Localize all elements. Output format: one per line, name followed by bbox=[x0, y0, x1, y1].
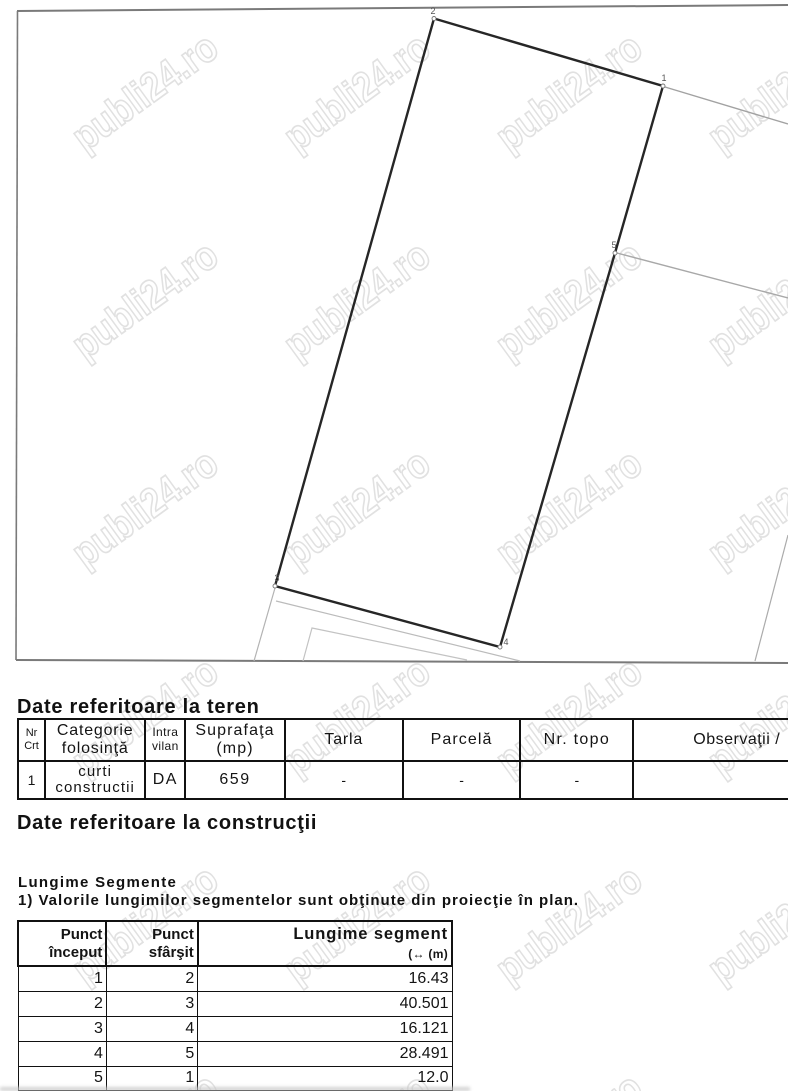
svg-text:publi24.ro: publi24.ro bbox=[699, 856, 788, 992]
svg-text:2: 2 bbox=[430, 6, 435, 16]
svg-text:4: 4 bbox=[503, 637, 508, 647]
svg-text:publi24.ro: publi24.ro bbox=[487, 856, 650, 992]
svg-text:5: 5 bbox=[611, 240, 616, 250]
svg-text:publi24.ro: publi24.ro bbox=[487, 1064, 650, 1091]
svg-text:publi24.ro: publi24.ro bbox=[699, 1064, 788, 1091]
svg-text:1: 1 bbox=[661, 73, 666, 83]
svg-text:3: 3 bbox=[274, 573, 279, 583]
